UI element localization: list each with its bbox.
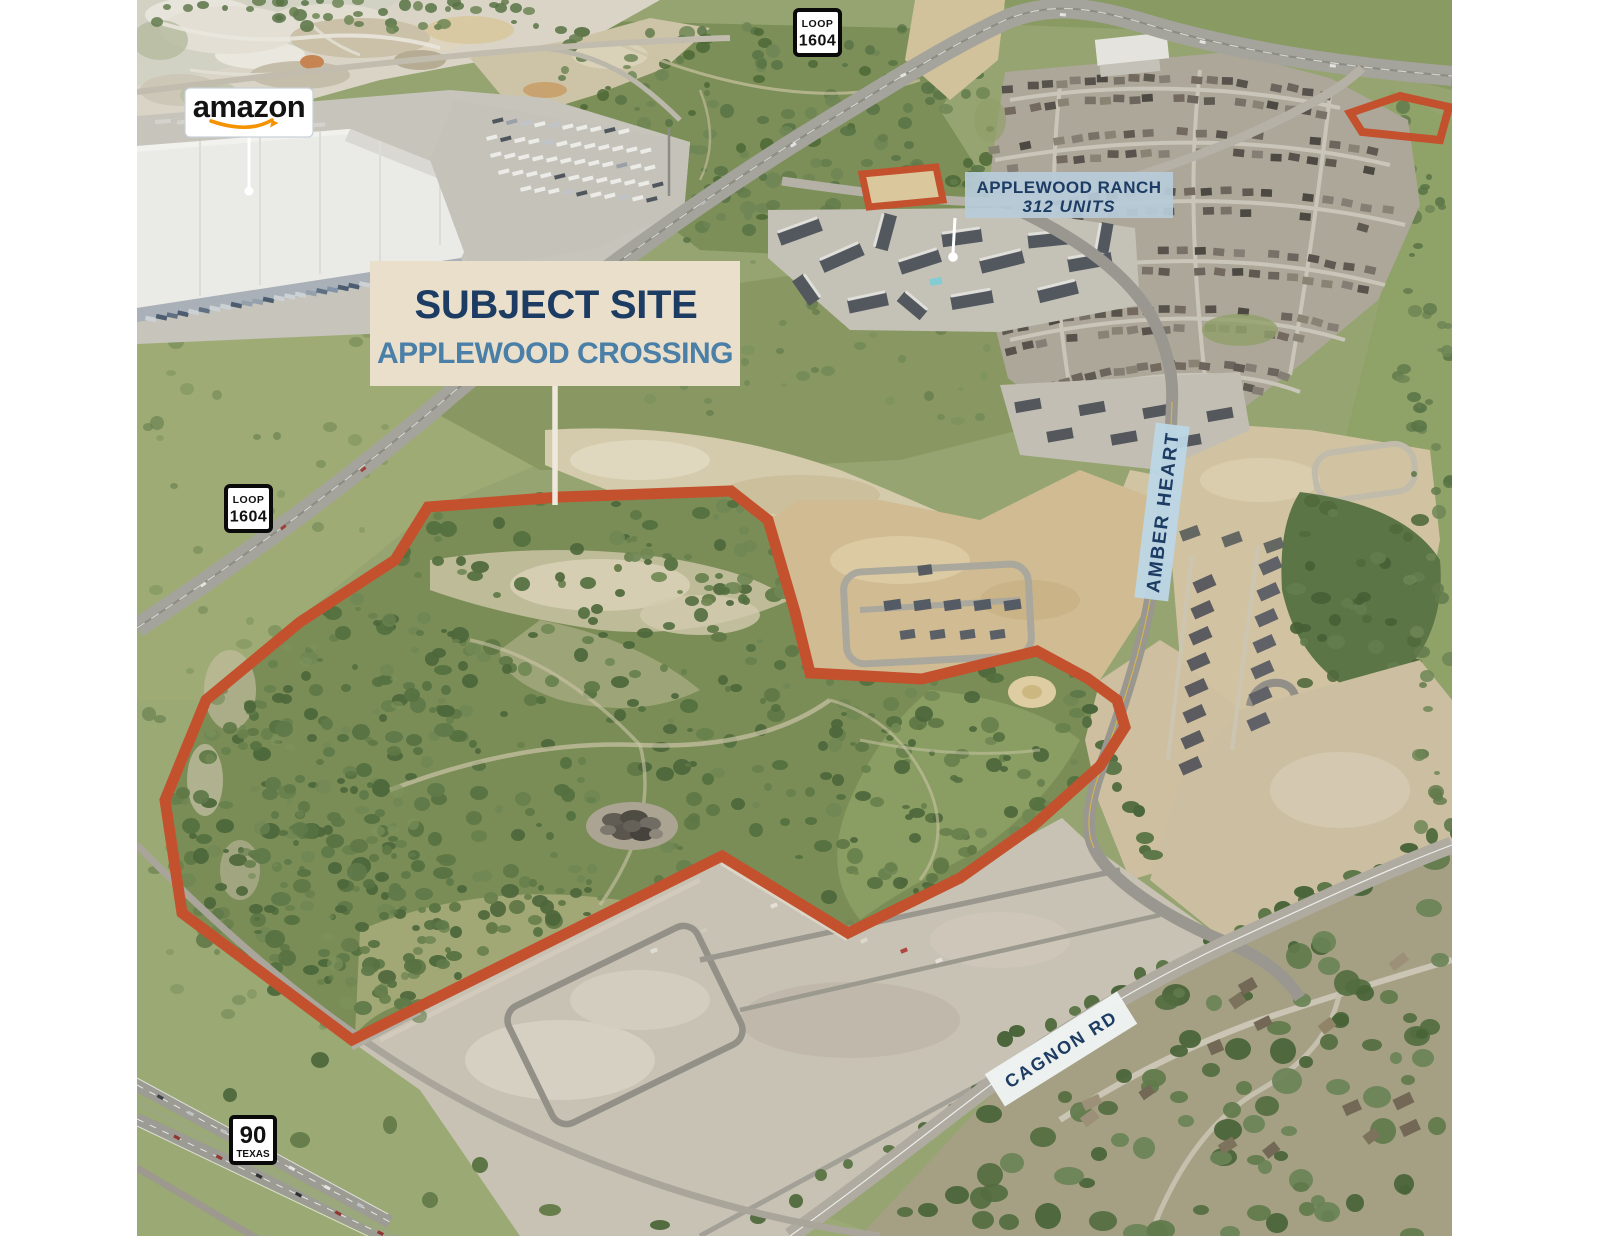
svg-text:APPLEWOOD CROSSING: APPLEWOOD CROSSING (377, 337, 733, 370)
svg-text:1604: 1604 (799, 33, 837, 50)
svg-text:90: 90 (240, 1122, 267, 1149)
svg-text:LOOP: LOOP (233, 494, 265, 506)
svg-text:312 UNITS: 312 UNITS (1022, 197, 1115, 216)
svg-text:SUBJECT SITE: SUBJECT SITE (414, 283, 697, 327)
svg-text:LOOP: LOOP (802, 18, 834, 30)
svg-text:amazon: amazon (193, 89, 305, 124)
svg-text:TEXAS: TEXAS (236, 1149, 270, 1160)
svg-text:APPLEWOOD RANCH: APPLEWOOD RANCH (976, 178, 1161, 197)
svg-text:1604: 1604 (230, 509, 268, 526)
